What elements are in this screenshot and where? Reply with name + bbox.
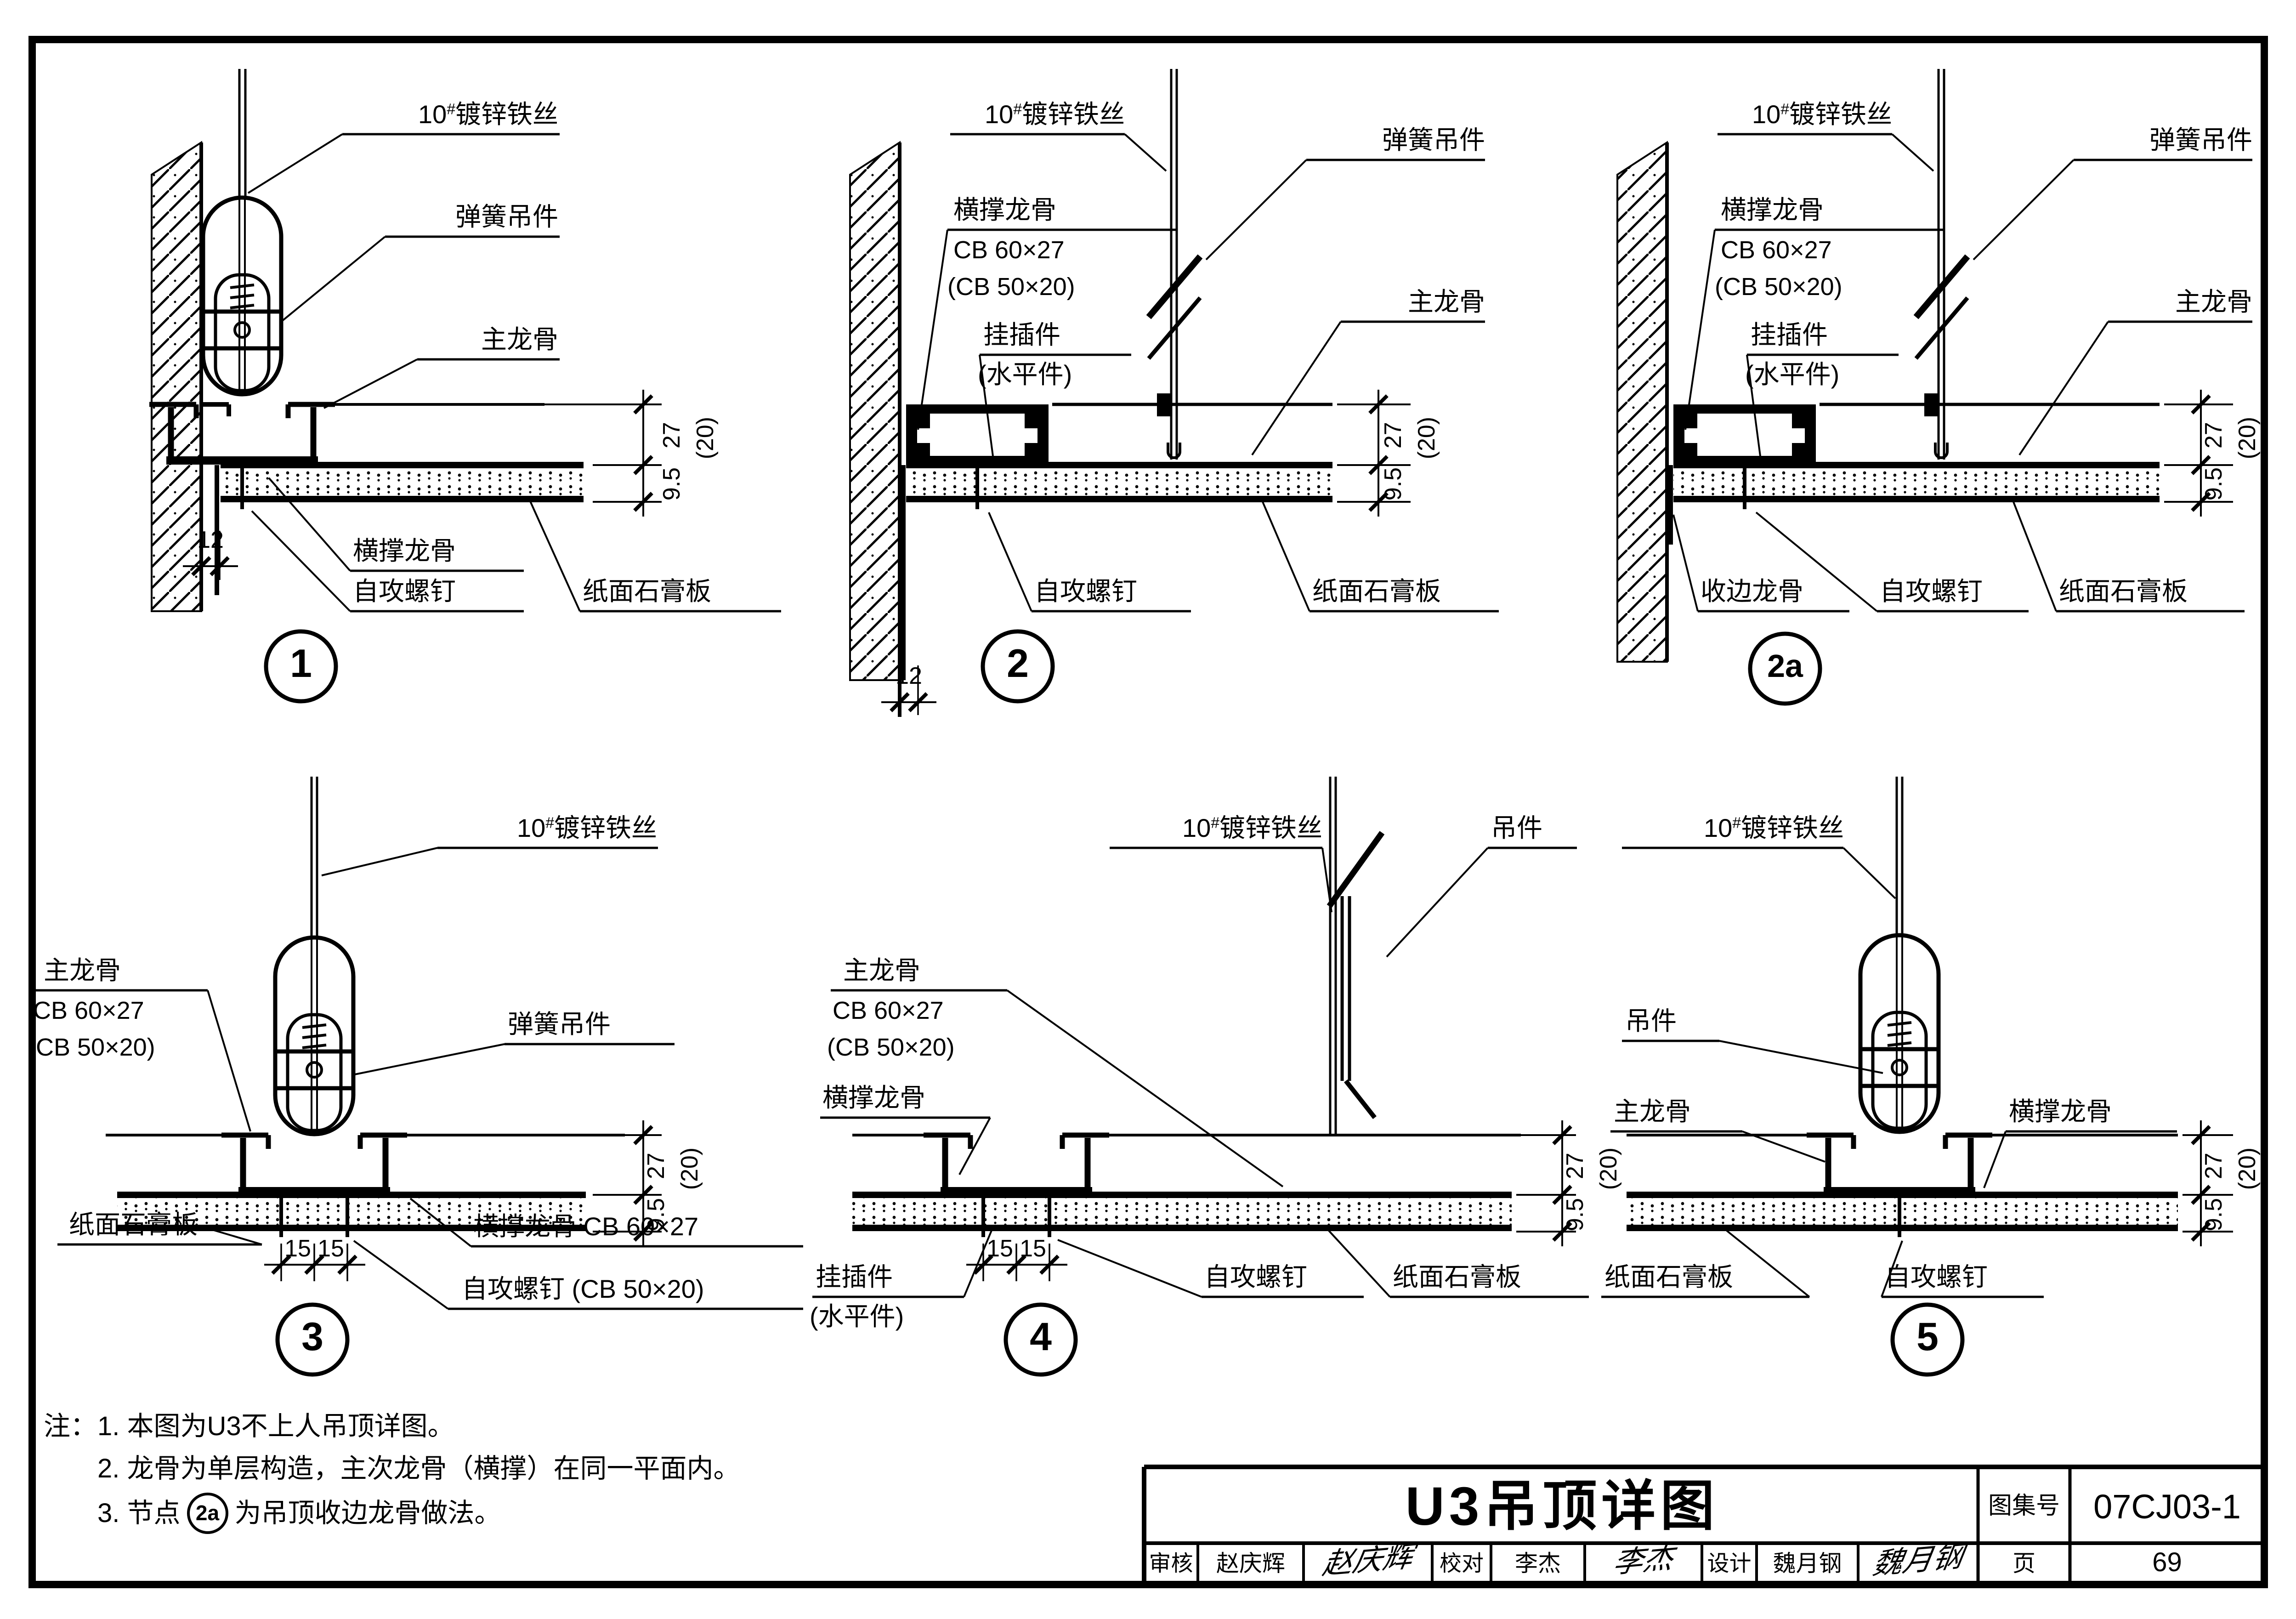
- d5-main-runner-label: 主龙骨: [1614, 1097, 1691, 1126]
- d1-spring-label: 弹簧吊件: [386, 203, 558, 232]
- d4-screw-label: 自攻螺钉: [1204, 1263, 1307, 1292]
- d5-cross-runner-label: 横撑龙骨: [2009, 1097, 2112, 1126]
- d1-cross-runner-label: 横撑龙骨: [353, 537, 456, 566]
- d2-hook-label2: (水平件): [978, 360, 1072, 389]
- d5-wire-label: 10#镀锌铁丝: [1624, 814, 1844, 843]
- d3-board-label: 纸面石膏板: [69, 1210, 198, 1239]
- d2-spring-label: 弹簧吊件: [1310, 126, 1485, 155]
- detail-2-drawing: [850, 69, 1499, 717]
- d4-main-runner-label: 主龙骨: [843, 956, 920, 985]
- d2a-dim-20: (20): [2234, 399, 2261, 477]
- d2a-detail-number: 2a: [1750, 648, 1820, 684]
- design-label: 设计: [1702, 1551, 1757, 1576]
- d2a-main-runner-label: 主龙骨: [2112, 288, 2252, 317]
- d1-dim-12: 12: [187, 527, 233, 553]
- d2a-wire-label: 10#镀锌铁丝: [1718, 100, 1892, 129]
- d2-hook-label: 挂插件: [983, 321, 1060, 350]
- note-line-3-node-badge: 2a: [187, 1493, 228, 1534]
- d1-detail-number: 1: [266, 642, 336, 686]
- d2a-dim-9-5: 9.5: [2200, 445, 2227, 523]
- d5-hanger-label: 吊件: [1625, 1007, 1677, 1036]
- page-number: 69: [2070, 1548, 2264, 1578]
- detail-2a-drawing: [1617, 69, 2252, 704]
- d2-cross-spec1: CB 60×27: [953, 236, 1065, 264]
- atlas-number-label: 图集号: [1978, 1493, 2070, 1519]
- d2a-cross-spec2: (CB 50×20): [1715, 273, 1842, 301]
- notes-prefix: 注：: [44, 1412, 97, 1442]
- d3-dim-20: (20): [676, 1130, 703, 1208]
- d4-dim-9-5: 9.5: [1562, 1176, 1588, 1254]
- d3-main-spec2: (CB 50×20): [28, 1034, 155, 1061]
- d2a-hook-label: 挂插件: [1751, 321, 1828, 350]
- d3-dim-15b: 15: [315, 1235, 347, 1262]
- d2a-cross-spec1: CB 60×27: [1721, 236, 1832, 264]
- d2-board-label: 纸面石膏板: [1312, 577, 1441, 606]
- d3-wire-label: 10#镀锌铁丝: [441, 814, 657, 843]
- page-label: 页: [1978, 1551, 2070, 1576]
- d5-detail-number: 5: [1893, 1315, 1962, 1359]
- d3-dim-9-5: 9.5: [643, 1176, 669, 1254]
- note-line-3-post: 为吊顶收边龙骨做法。: [235, 1499, 501, 1528]
- note-line-3: 3. 节点 2a 为吊顶收边龙骨做法。: [97, 1493, 501, 1534]
- d2-dim-12: 12: [886, 663, 932, 689]
- d2-detail-number: 2: [983, 642, 1053, 686]
- d2-main-runner-label: 主龙骨: [1345, 288, 1485, 317]
- note-line-2: 2. 龙骨为单层构造，主次龙骨（横撑）在同一平面内。: [97, 1454, 740, 1484]
- d4-dim-20: (20): [1595, 1130, 1622, 1208]
- sheet-title: U3吊顶详图: [1176, 1476, 1948, 1537]
- d2a-edge-runner-label: 收边龙骨: [1701, 577, 1803, 606]
- d3-dim-15a: 15: [282, 1235, 314, 1262]
- d4-board-label: 纸面石膏板: [1393, 1263, 1521, 1292]
- d2a-screw-label: 自攻螺钉: [1880, 577, 1983, 606]
- d1-wire-label: 10#镀锌铁丝: [345, 100, 558, 129]
- note-line-3-pre: 3. 节点: [97, 1499, 181, 1528]
- d2a-spring-label: 弹簧吊件: [2078, 126, 2252, 155]
- d4-dim-15b: 15: [1017, 1235, 1049, 1262]
- d3-main-runner-label: 主龙骨: [44, 956, 121, 985]
- detail-1-drawing: [149, 69, 781, 701]
- d2a-board-label: 纸面石膏板: [2059, 577, 2188, 606]
- d1-dim-20: (20): [692, 399, 719, 477]
- design-name: 魏月钢: [1757, 1551, 1858, 1576]
- d2-dim-9-5: 9.5: [1380, 445, 1406, 523]
- d5-dim-20: (20): [2234, 1130, 2261, 1208]
- d2a-hook-label2: (水平件): [1745, 360, 1839, 389]
- d4-wire-label: 10#镀锌铁丝: [1112, 814, 1322, 843]
- d4-hook-label2: (水平件): [810, 1302, 904, 1331]
- d1-board-label: 纸面石膏板: [583, 577, 711, 606]
- review-label: 审核: [1144, 1551, 1198, 1576]
- d5-dim-9-5: 9.5: [2200, 1176, 2227, 1254]
- d4-main-spec1: CB 60×27: [833, 997, 944, 1024]
- d4-detail-number: 4: [1006, 1315, 1076, 1359]
- d1-main-runner-label: 主龙骨: [418, 325, 558, 354]
- d2a-cross-runner-label: 横撑龙骨: [1721, 196, 1824, 225]
- d2-cross-spec2: (CB 50×20): [947, 273, 1075, 301]
- d3-spring-label: 弹簧吊件: [508, 1010, 611, 1039]
- d2-dim-20: (20): [1413, 399, 1440, 477]
- d2-cross-runner-label: 横撑龙骨: [953, 196, 1056, 225]
- proof-label: 校对: [1432, 1551, 1491, 1576]
- d4-hook-label: 挂插件: [816, 1263, 893, 1292]
- d4-main-spec2: (CB 50×20): [827, 1034, 955, 1061]
- review-name: 赵庆辉: [1198, 1551, 1304, 1576]
- d3-main-spec1: CB 60×27: [33, 997, 144, 1024]
- d4-cross-runner-label: 横撑龙骨: [822, 1084, 925, 1113]
- d1-screw-label: 自攻螺钉: [353, 577, 456, 606]
- d2-screw-label: 自攻螺钉: [1034, 577, 1137, 606]
- d5-board-label: 纸面石膏板: [1604, 1263, 1733, 1292]
- d3-detail-number: 3: [278, 1315, 347, 1359]
- d2-wire-label: 10#镀锌铁丝: [951, 100, 1125, 129]
- linework-layer: [0, 0, 2296, 1619]
- d3-screw-spec-label: 自攻螺钉 (CB 50×20): [462, 1275, 704, 1304]
- d1-dim-9-5: 9.5: [658, 445, 685, 523]
- d5-screw-label: 自攻螺钉: [1885, 1263, 1988, 1292]
- drawing-sheet: 10#镀锌铁丝 弹簧吊件 主龙骨 横撑龙骨 自攻螺钉 纸面石膏板 27 (20)…: [0, 0, 2296, 1619]
- proof-name: 李杰: [1491, 1551, 1585, 1576]
- d4-hanger-label: 吊件: [1491, 814, 1542, 843]
- note-line-1: 1. 本图为U3不上人吊顶详图。: [97, 1412, 454, 1442]
- atlas-number-value: 07CJ03-1: [2070, 1488, 2264, 1526]
- d4-dim-15a: 15: [984, 1235, 1016, 1262]
